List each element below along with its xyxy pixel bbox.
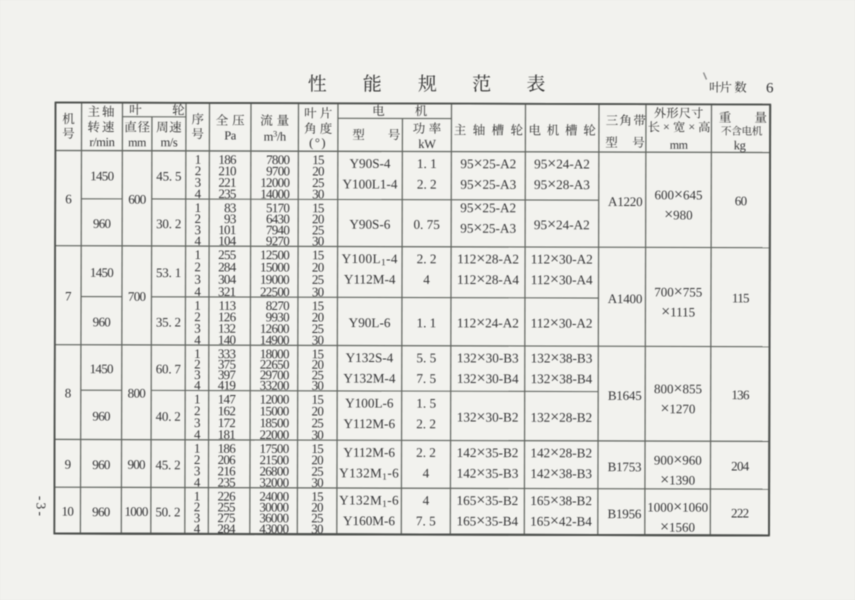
svg-text:165×38-B2: 165×38-B2 xyxy=(530,492,592,509)
svg-text:284: 284 xyxy=(217,521,236,536)
svg-text:7. 5: 7. 5 xyxy=(416,513,436,528)
svg-text:112×30-A2: 112×30-A2 xyxy=(531,315,593,332)
svg-text:4: 4 xyxy=(423,466,430,481)
svg-text:22500: 22500 xyxy=(260,284,289,299)
svg-text:30: 30 xyxy=(312,332,324,347)
svg-text:mm: mm xyxy=(670,138,689,152)
svg-text:132×30-B4: 132×30-B4 xyxy=(457,370,519,387)
svg-text:Y100L1-4: Y100L1-4 xyxy=(342,251,398,268)
svg-text:Y132M1-6: Y132M1-6 xyxy=(339,465,399,482)
svg-text:Y132M-4: Y132M-4 xyxy=(343,371,395,386)
svg-text:165×42-B4: 165×42-B4 xyxy=(530,513,592,530)
svg-text:600: 600 xyxy=(128,192,146,207)
svg-text:112×30-A4: 112×30-A4 xyxy=(531,271,593,288)
svg-text:×: × xyxy=(688,120,695,134)
svg-text:B1645: B1645 xyxy=(608,388,642,403)
svg-text:132×30-B3: 132×30-B3 xyxy=(457,349,519,366)
svg-text:204: 204 xyxy=(731,458,750,473)
svg-text:Y112M-4: Y112M-4 xyxy=(344,272,396,287)
svg-text:30: 30 xyxy=(312,233,324,248)
svg-text:kg: kg xyxy=(734,138,747,152)
svg-text:40. 2: 40. 2 xyxy=(156,409,181,424)
svg-text:Y90L-6: Y90L-6 xyxy=(349,315,391,330)
svg-text:×1390: ×1390 xyxy=(660,471,695,488)
svg-text:115: 115 xyxy=(732,290,749,305)
svg-text:960: 960 xyxy=(92,457,110,472)
svg-text:6: 6 xyxy=(766,81,774,97)
svg-text:132×38-B3: 132×38-B3 xyxy=(531,350,593,367)
svg-text:2. 2: 2. 2 xyxy=(416,445,436,460)
svg-text:×980: ×980 xyxy=(664,206,692,223)
svg-text:Y112M-6: Y112M-6 xyxy=(343,445,395,460)
svg-text:Y90S-4: Y90S-4 xyxy=(349,156,390,171)
svg-text:165×35-B2: 165×35-B2 xyxy=(457,492,519,509)
svg-text:×1560: ×1560 xyxy=(660,519,695,536)
svg-text:7. 5: 7. 5 xyxy=(416,371,436,386)
svg-text:136: 136 xyxy=(731,387,750,402)
svg-text:r/min: r/min xyxy=(89,135,115,149)
svg-text:30: 30 xyxy=(312,284,324,299)
svg-text:Y132M1-6: Y132M1-6 xyxy=(339,492,399,509)
svg-text:(°): (°) xyxy=(309,136,327,150)
svg-text:140: 140 xyxy=(218,332,236,347)
svg-text:960: 960 xyxy=(93,314,111,329)
svg-text:×: × xyxy=(663,120,670,134)
svg-text:53. 1: 53. 1 xyxy=(156,265,181,280)
svg-text:95×25-A3: 95×25-A3 xyxy=(460,220,516,237)
svg-text:Y112M-6: Y112M-6 xyxy=(344,416,396,431)
svg-text:960: 960 xyxy=(92,409,110,424)
svg-text:0. 75: 0. 75 xyxy=(413,217,440,232)
svg-text:104: 104 xyxy=(218,233,237,248)
svg-text:1450: 1450 xyxy=(90,265,113,280)
svg-text:60. 7: 60. 7 xyxy=(156,361,182,376)
svg-text:30: 30 xyxy=(312,186,324,201)
svg-text:2. 2: 2. 2 xyxy=(417,177,437,192)
svg-text:22000: 22000 xyxy=(260,427,289,442)
svg-text:900×960: 900×960 xyxy=(654,451,702,468)
svg-text:50. 2: 50. 2 xyxy=(155,504,180,519)
svg-text:112×24-A2: 112×24-A2 xyxy=(457,314,519,331)
svg-text:Y132S-4: Y132S-4 xyxy=(346,350,394,365)
svg-text:14900: 14900 xyxy=(260,332,289,347)
svg-text:30. 2: 30. 2 xyxy=(156,216,181,231)
svg-text:×1115: ×1115 xyxy=(661,303,695,320)
svg-text:1. 1: 1. 1 xyxy=(416,315,436,330)
svg-text:35. 2: 35. 2 xyxy=(156,314,181,329)
svg-text:Y90S-6: Y90S-6 xyxy=(349,217,390,232)
svg-text:1450: 1450 xyxy=(90,168,113,183)
svg-text:1000: 1000 xyxy=(124,504,147,519)
svg-text:235: 235 xyxy=(218,475,236,490)
svg-text:142×38-B3: 142×38-B3 xyxy=(530,465,592,482)
svg-text:2. 2: 2. 2 xyxy=(416,416,436,431)
svg-text:4: 4 xyxy=(423,272,430,287)
svg-text:B1956: B1956 xyxy=(607,506,641,521)
svg-text:30: 30 xyxy=(311,521,323,536)
svg-text:60: 60 xyxy=(735,193,747,208)
svg-text:181: 181 xyxy=(218,427,236,442)
svg-text:Pa: Pa xyxy=(224,128,237,142)
svg-text:30: 30 xyxy=(312,378,324,393)
svg-text:165×35-B4: 165×35-B4 xyxy=(456,512,518,529)
svg-text:235: 235 xyxy=(218,186,236,201)
svg-text:142×35-B3: 142×35-B3 xyxy=(457,465,519,482)
svg-text:45. 5: 45. 5 xyxy=(156,168,181,183)
svg-text:700: 700 xyxy=(128,289,146,304)
svg-text:8: 8 xyxy=(65,385,71,400)
svg-text:132×28-B2: 132×28-B2 xyxy=(530,409,592,426)
svg-text:A1220: A1220 xyxy=(608,194,642,209)
svg-text:32000: 32000 xyxy=(259,475,288,490)
svg-text:A1400: A1400 xyxy=(608,291,642,306)
svg-text:10: 10 xyxy=(62,504,74,519)
svg-text:Y160M-6: Y160M-6 xyxy=(343,513,395,528)
svg-text:B1753: B1753 xyxy=(608,459,642,474)
svg-text:Y100L-6: Y100L-6 xyxy=(345,395,394,410)
svg-text:4: 4 xyxy=(423,493,430,508)
svg-text:×1270: ×1270 xyxy=(660,400,695,417)
svg-text:95×24-A2: 95×24-A2 xyxy=(534,216,590,233)
svg-text:95×25-A3: 95×25-A3 xyxy=(460,176,516,193)
svg-text:600×645: 600×645 xyxy=(655,186,703,203)
svg-text:9: 9 xyxy=(65,457,71,472)
svg-text:112×28-A4: 112×28-A4 xyxy=(457,271,519,288)
svg-text:112×30-A2: 112×30-A2 xyxy=(531,251,593,268)
svg-text:419: 419 xyxy=(218,378,236,393)
svg-text:mm: mm xyxy=(128,135,147,149)
svg-text:800: 800 xyxy=(128,386,146,401)
svg-text:m/s: m/s xyxy=(160,135,177,149)
svg-text:43000: 43000 xyxy=(259,521,288,536)
svg-text:30: 30 xyxy=(311,427,323,442)
svg-text:1. 5: 1. 5 xyxy=(416,396,436,411)
svg-text:14000: 14000 xyxy=(260,186,289,201)
svg-text:800×855: 800×855 xyxy=(654,380,702,397)
svg-text:142×35-B2: 142×35-B2 xyxy=(457,444,519,461)
svg-text:9270: 9270 xyxy=(266,233,289,248)
svg-text:30: 30 xyxy=(311,475,323,490)
svg-text:132×38-B4: 132×38-B4 xyxy=(531,370,593,387)
svg-text:1450: 1450 xyxy=(90,361,113,376)
svg-text:5. 5: 5. 5 xyxy=(416,350,436,365)
svg-text:45. 2: 45. 2 xyxy=(155,457,180,472)
svg-text:95×25-A2: 95×25-A2 xyxy=(460,155,516,172)
svg-text:95×24-A2: 95×24-A2 xyxy=(534,155,590,172)
svg-text:1. 1: 1. 1 xyxy=(417,156,437,171)
svg-text:kW: kW xyxy=(418,137,436,151)
svg-text:Y100L1-4: Y100L1-4 xyxy=(342,176,397,191)
svg-text:321: 321 xyxy=(218,284,236,299)
svg-text:1000×1060: 1000×1060 xyxy=(647,499,708,516)
svg-text:-3-: -3- xyxy=(34,496,49,518)
svg-text:112×28-A2: 112×28-A2 xyxy=(457,250,519,267)
svg-text:222: 222 xyxy=(731,505,749,520)
svg-text:700×755: 700×755 xyxy=(654,283,702,300)
svg-text:33200: 33200 xyxy=(260,378,289,393)
svg-text:95×28-A3: 95×28-A3 xyxy=(534,176,590,193)
svg-text:2. 2: 2. 2 xyxy=(417,251,437,266)
svg-text:960: 960 xyxy=(93,216,111,231)
svg-text:960: 960 xyxy=(92,504,110,519)
svg-text:142×28-B2: 142×28-B2 xyxy=(530,444,592,461)
svg-text:95×25-A2: 95×25-A2 xyxy=(460,199,516,216)
svg-text:132×30-B2: 132×30-B2 xyxy=(457,409,519,426)
svg-text:900: 900 xyxy=(127,457,145,472)
